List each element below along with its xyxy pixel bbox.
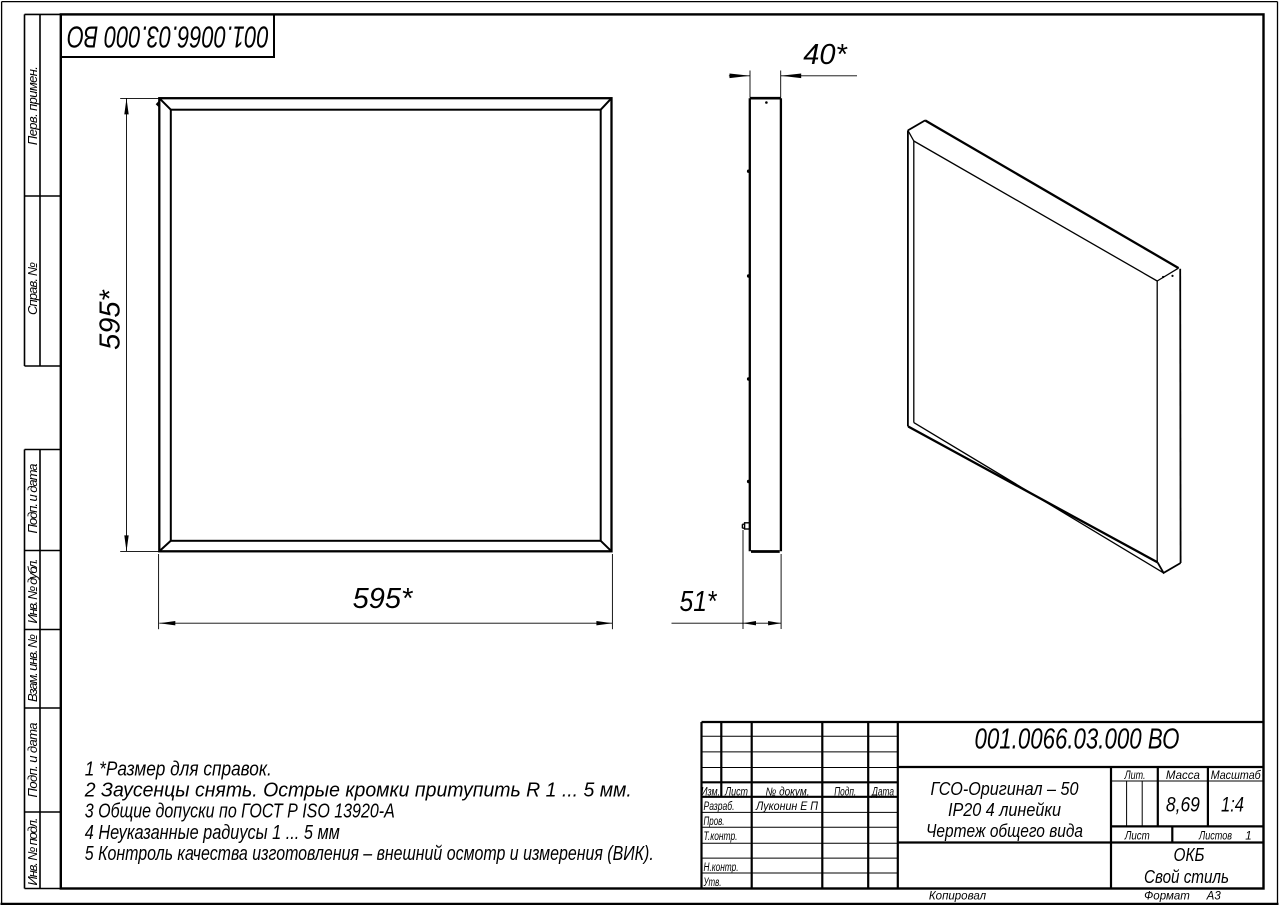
svg-text:595*: 595*: [353, 583, 414, 615]
svg-text:№ докум.: № докум.: [766, 787, 810, 799]
svg-text:Копировал: Копировал: [929, 891, 987, 903]
svg-text:Лист: Лист: [1124, 831, 1150, 843]
svg-text:2 Заусенцы снять. Острые кромк: 2 Заусенцы снять. Острые кромки притупит…: [84, 780, 632, 802]
svg-text:40*: 40*: [803, 39, 848, 71]
svg-text:Луконин Е П: Луконин Е П: [755, 801, 819, 813]
svg-text:Лит.: Лит.: [1124, 770, 1146, 782]
svg-text:Инв. № подл.: Инв. № подл.: [25, 818, 40, 886]
svg-text:1 *Размер для справок.: 1 *Размер для справок.: [85, 758, 272, 780]
svg-text:ГСО-Оригинал – 50: ГСО-Оригинал – 50: [931, 778, 1080, 799]
svg-text:Листов: Листов: [1198, 831, 1232, 843]
svg-text:Подп. и дата: Подп. и дата: [25, 464, 40, 534]
svg-text:001.0066.03.000 ВО: 001.0066.03.000 ВО: [975, 724, 1180, 756]
svg-text:3 Общие допуски по ГОСТ Р ISO: 3 Общие допуски по ГОСТ Р ISO 13920-А: [85, 801, 395, 823]
svg-text:1: 1: [1245, 831, 1251, 843]
svg-text:Подп. и дата: Подп. и дата: [25, 723, 40, 798]
svg-text:Н.контр.: Н.контр.: [704, 862, 739, 874]
svg-text:Масса: Масса: [1166, 770, 1200, 782]
svg-text:001.0066.03.000 ВО: 001.0066.03.000 ВО: [67, 20, 269, 55]
svg-text:Разраб.: Разраб.: [704, 801, 735, 813]
svg-text:Взам. инв. №: Взам. инв. №: [25, 634, 40, 702]
svg-text:Т.контр.: Т.контр.: [704, 831, 738, 843]
svg-text:Чертеж общего вида: Чертеж общего вида: [926, 820, 1083, 841]
svg-text:595*: 595*: [95, 288, 127, 349]
svg-text:4 Неуказанные радиусы 1 ... 5: 4 Неуказанные радиусы 1 ... 5 мм: [85, 822, 340, 844]
svg-text:Лист: Лист: [724, 787, 748, 799]
svg-text:Подп.: Подп.: [834, 787, 856, 799]
svg-text:ОКБ: ОКБ: [1174, 844, 1205, 865]
svg-text:Справ. №: Справ. №: [25, 262, 40, 315]
svg-text:5 Контроль качества изготовлен: 5 Контроль качества изготовления – внешн…: [85, 843, 654, 865]
svg-text:Утв.: Утв.: [703, 877, 722, 889]
svg-text:1:4: 1:4: [1221, 794, 1244, 817]
svg-text:Перв. примен.: Перв. примен.: [25, 66, 40, 145]
svg-text:Свой стиль: Свой стиль: [1144, 866, 1229, 887]
svg-text:Формат: Формат: [1144, 891, 1190, 903]
svg-text:Дата: Дата: [871, 787, 894, 799]
svg-text:Пров.: Пров.: [704, 816, 725, 828]
svg-text:Изм.: Изм.: [701, 787, 720, 799]
svg-text:51*: 51*: [680, 586, 718, 618]
svg-text:Масштаб: Масштаб: [1211, 770, 1261, 782]
svg-text:А3: А3: [1206, 891, 1222, 903]
svg-text:Инв. № дубл.: Инв. № дубл.: [25, 559, 40, 624]
svg-text:IP20 4 линейки: IP20 4 линейки: [948, 799, 1061, 820]
svg-text:8,69: 8,69: [1166, 794, 1200, 817]
